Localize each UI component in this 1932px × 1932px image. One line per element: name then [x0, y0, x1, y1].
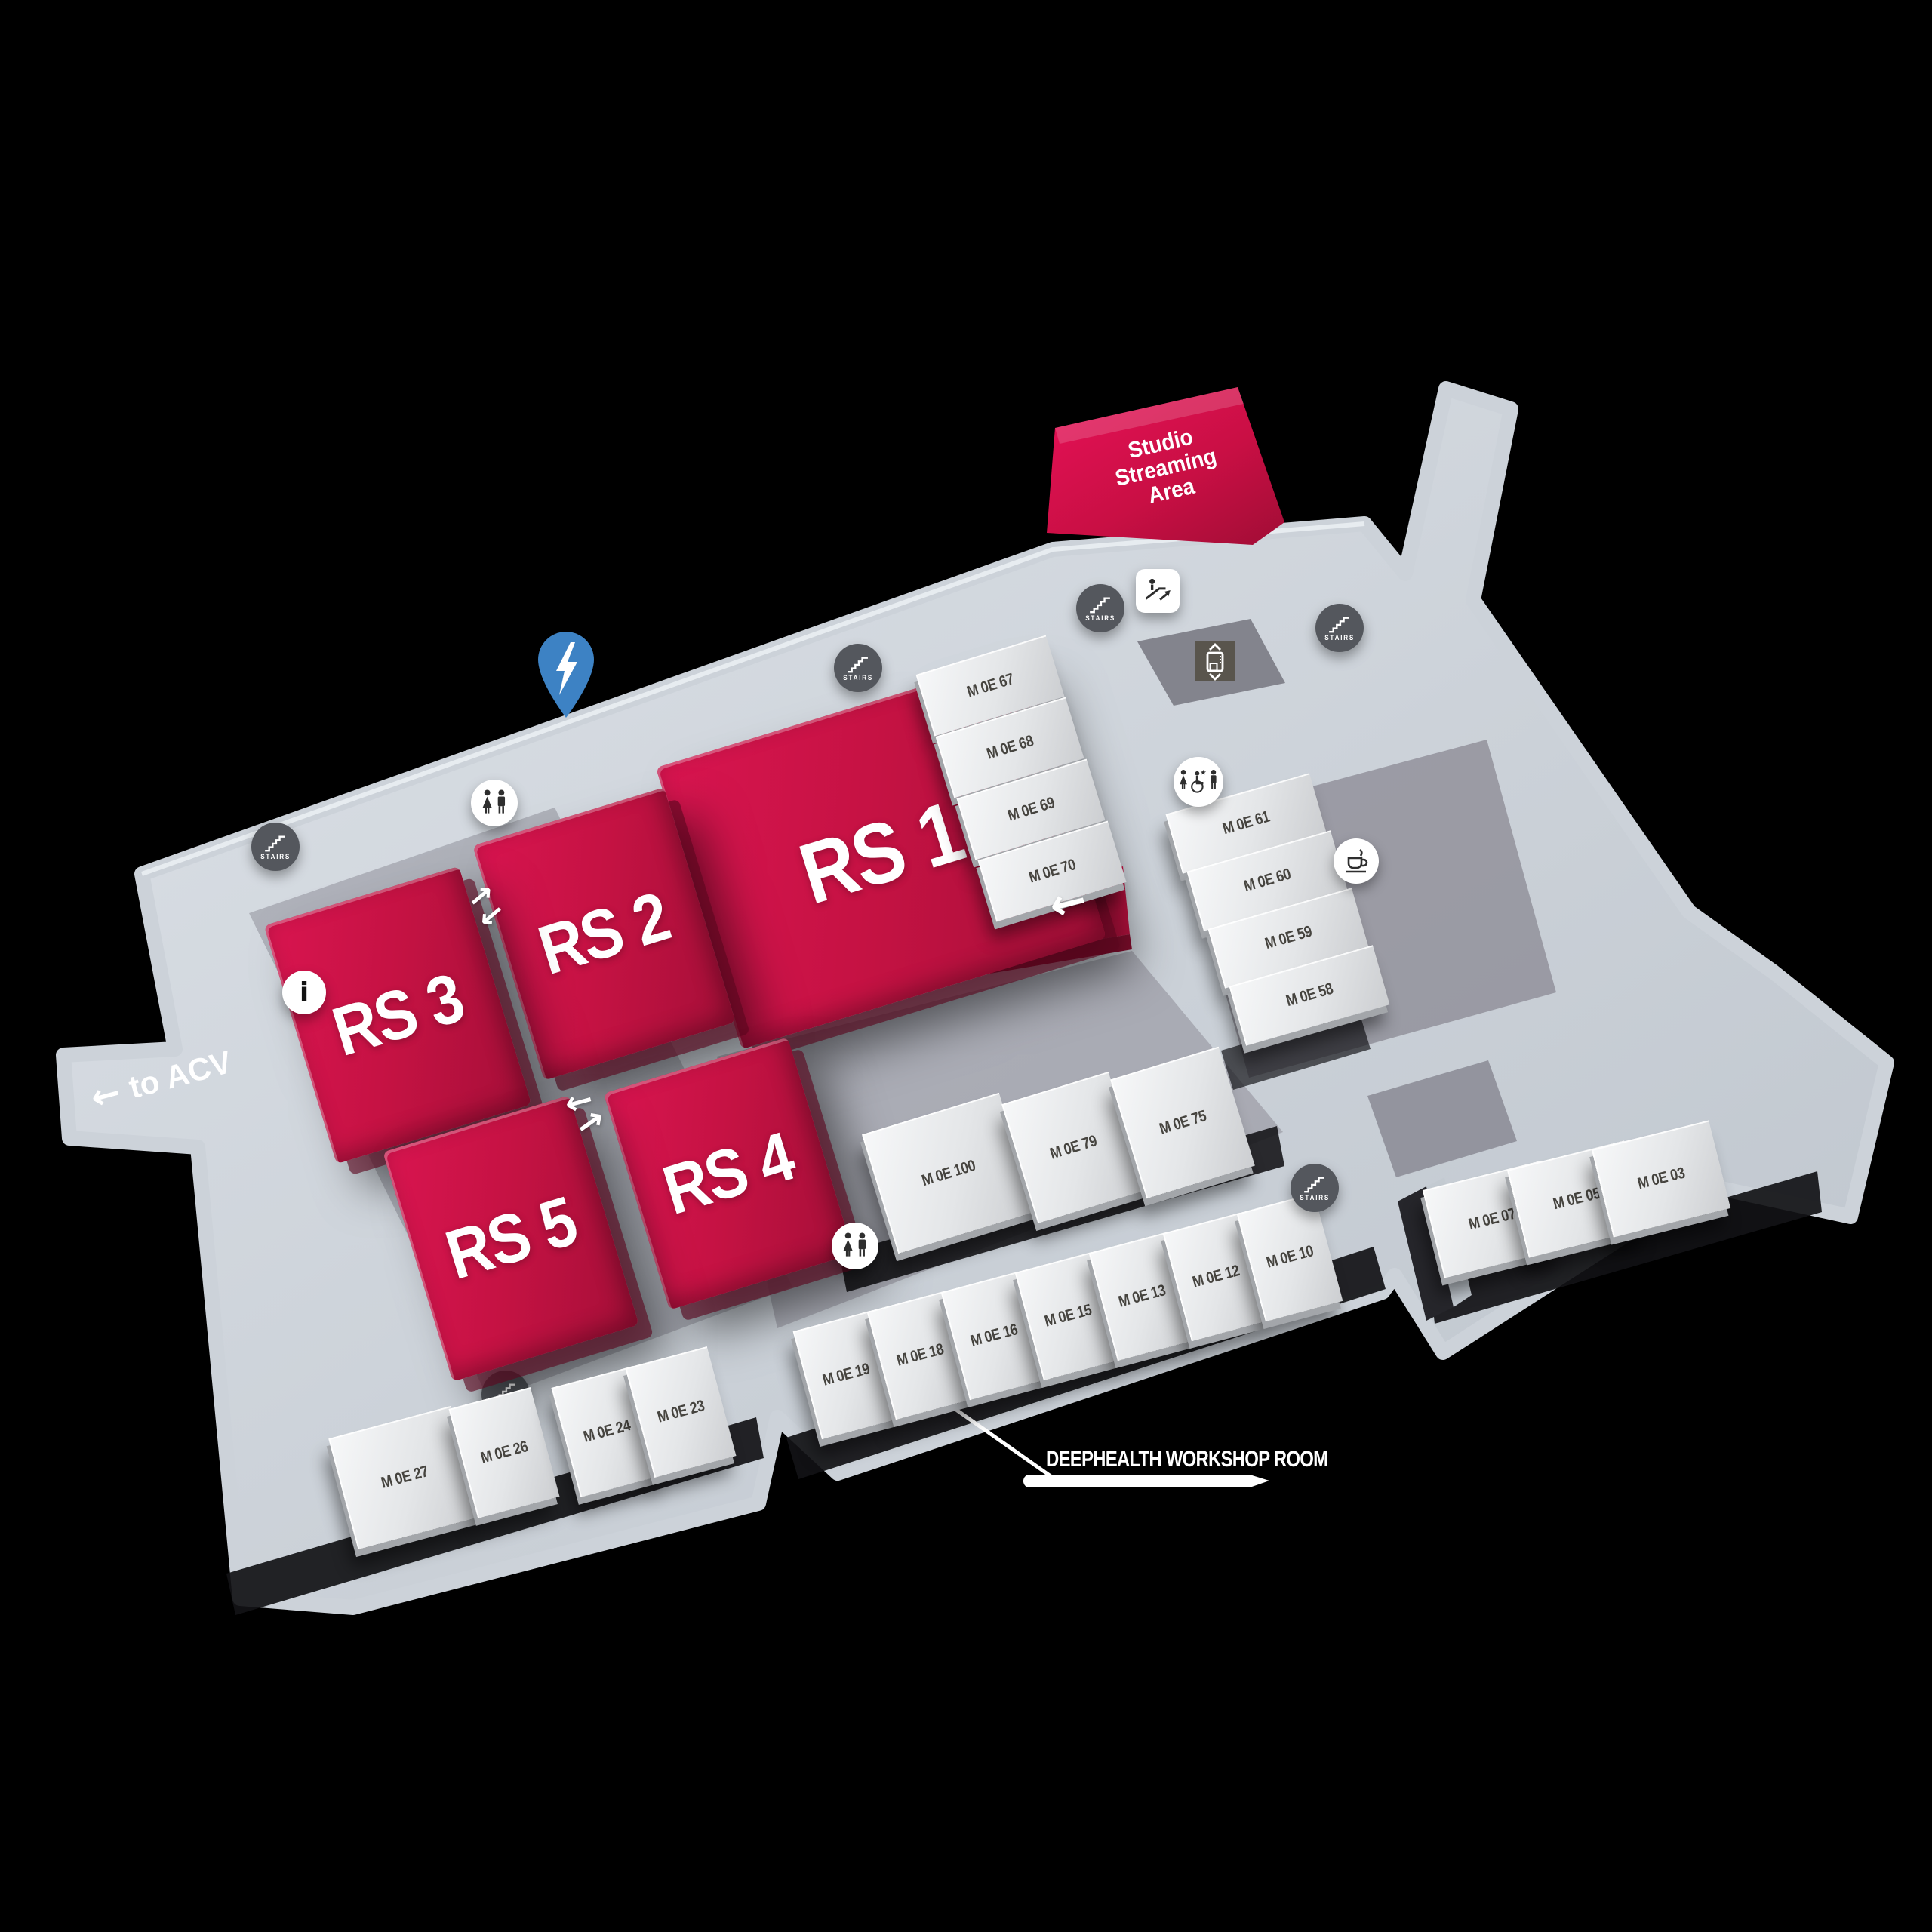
- room-rs1-label: RS 1: [789, 782, 974, 924]
- stairs-glyph: [263, 834, 288, 852]
- stairs-icon: STAIRS: [251, 823, 300, 871]
- stairs-icon-label: STAIRS: [843, 674, 873, 681]
- coffee-glyph: [1341, 846, 1371, 876]
- elevator-glyph: [1195, 641, 1235, 681]
- venue-floor-map: STAIRS RS 1 RS 2 RS 3 RS 4 RS 5 M 0E 67 …: [0, 0, 1932, 1932]
- room-rs2-label: RS 2: [530, 877, 678, 991]
- lightning-pin-icon[interactable]: [531, 627, 601, 721]
- accessible-toilets-glyph: [1177, 768, 1220, 795]
- room-m0e23-label: M 0E 23: [655, 1397, 706, 1427]
- room-m0e75-label: M 0E 75: [1157, 1107, 1208, 1139]
- toilets-glyph: [477, 788, 512, 818]
- stairs-icon-label: STAIRS: [1324, 634, 1355, 641]
- room-m0e58-label: M 0E 58: [1284, 980, 1335, 1011]
- toilets-icon: [832, 1223, 878, 1269]
- room-m0e12-label: M 0E 12: [1190, 1262, 1241, 1292]
- stairs-icon-label: STAIRS: [1300, 1194, 1330, 1201]
- room-m0e27-label: M 0E 27: [379, 1463, 430, 1493]
- room-m0e10-label: M 0E 10: [1264, 1242, 1315, 1272]
- stairs-icon: STAIRS: [834, 644, 882, 692]
- room-m0e24-label: M 0E 24: [581, 1417, 632, 1447]
- room-m0e59-label: M 0E 59: [1263, 923, 1314, 954]
- escalator-icon: [1136, 569, 1180, 613]
- coffee-icon: [1334, 838, 1379, 884]
- room-m0e19-label: M 0E 19: [820, 1360, 872, 1390]
- room-m0e07-label: M 0E 07: [1466, 1205, 1517, 1235]
- stairs-glyph: [1303, 1175, 1327, 1193]
- escalator-glyph: [1142, 575, 1174, 607]
- room-m0e69-label: M 0E 69: [1005, 794, 1057, 826]
- room-m0e100-label: M 0E 100: [920, 1156, 978, 1189]
- elevator-icon: [1195, 641, 1235, 681]
- callout-underline: [1023, 1475, 1269, 1487]
- room-rs5-label: RS 5: [437, 1182, 585, 1296]
- stairs-icon: STAIRS: [1076, 584, 1124, 632]
- stairs-icon: STAIRS: [1315, 604, 1364, 652]
- room-m0e26-label: M 0E 26: [478, 1438, 530, 1468]
- room-rs4-label: RS 4: [654, 1117, 802, 1231]
- deephealth-workshop-room-label: DEEPHEALTH WORKSHOP ROOM: [1046, 1447, 1327, 1472]
- room-m0e03-label: M 0E 03: [1635, 1164, 1686, 1194]
- info-icon: i: [282, 971, 326, 1014]
- toilets-icon: [471, 780, 518, 826]
- stairs-glyph: [1327, 615, 1352, 633]
- room-m0e67-label: M 0E 67: [964, 670, 1016, 702]
- stairs-icon-label: STAIRS: [1085, 614, 1115, 622]
- room-rs3-label: RS 3: [324, 958, 472, 1072]
- room-m0e61-label: M 0E 61: [1220, 808, 1272, 839]
- room-m0e16-label: M 0E 16: [968, 1321, 1020, 1351]
- room-m0e79-label: M 0E 79: [1048, 1132, 1099, 1164]
- toilets-glyph: [838, 1231, 872, 1261]
- stairs-icon: STAIRS: [1291, 1164, 1339, 1212]
- stairs-glyph: [846, 655, 870, 673]
- stairs-icon-label: STAIRS: [260, 853, 291, 860]
- room-m0e05-label: M 0E 05: [1551, 1185, 1601, 1214]
- room-m0e68-label: M 0E 68: [984, 732, 1035, 764]
- accessible-toilets-icon: [1174, 757, 1223, 807]
- room-m0e60-label: M 0E 60: [1241, 866, 1293, 897]
- room-m0e13-label: M 0E 13: [1116, 1281, 1168, 1312]
- stairs-glyph: [1088, 595, 1112, 614]
- room-m0e18-label: M 0E 18: [894, 1340, 946, 1371]
- room-m0e15-label: M 0E 15: [1042, 1301, 1094, 1331]
- info-glyph: i: [300, 977, 309, 1008]
